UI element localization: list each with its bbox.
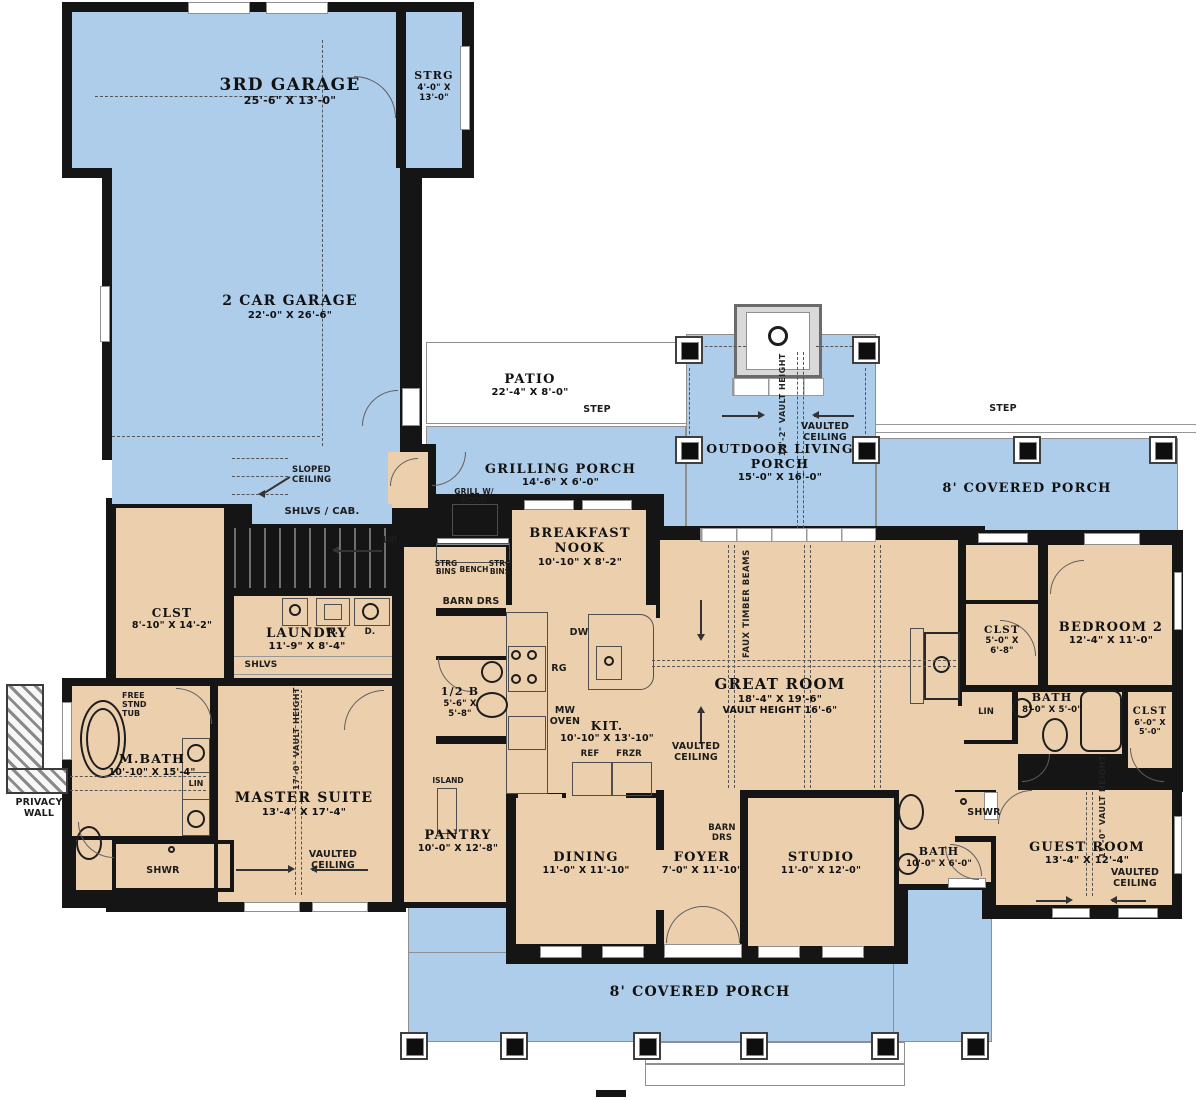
- arrowhead: [758, 411, 769, 419]
- shlvs-label: SHLVS: [238, 660, 284, 670]
- frzr-label: FRZR: [612, 750, 646, 760]
- garage-door: [188, 2, 250, 14]
- label-half-bath: 1/2 B 5'-6" X 5'-8": [438, 686, 482, 719]
- room-name: PATIO: [468, 372, 592, 387]
- room-name: BATH: [906, 846, 972, 859]
- opening: [954, 706, 964, 782]
- step-label: STEP: [978, 404, 1028, 415]
- garage-bay-line: [112, 436, 320, 437]
- label-pantry: PANTRY 10'-0" X 12'-8": [414, 828, 502, 855]
- step-label: STEP: [572, 405, 622, 416]
- up-arrow: [334, 550, 382, 552]
- dryer-door: [362, 603, 379, 620]
- beam-line: [652, 660, 956, 661]
- rg-label: RG: [548, 664, 570, 675]
- room-name: BATH: [1022, 692, 1082, 705]
- vault-arrow: [722, 415, 762, 417]
- room-name: 8' COVERED PORCH: [932, 481, 1122, 496]
- label-clst-guest: CLST 6'-0" X 5'-0": [1126, 706, 1174, 737]
- porch-column: [1149, 436, 1177, 464]
- window: [1052, 908, 1090, 918]
- arrowhead: [808, 411, 819, 419]
- burner: [527, 650, 537, 660]
- arrowhead: [697, 634, 705, 645]
- label-clst-b2: CLST 5'-0" X 6'-8": [974, 624, 1030, 656]
- porch-column: [961, 1032, 989, 1060]
- shower-head: [960, 798, 967, 805]
- label-patio: PATIO 22'-4" X 8'-0": [468, 372, 592, 399]
- ref-label: REF: [576, 750, 604, 760]
- room-name: GREAT ROOM: [698, 676, 862, 694]
- room-dims: 6'-0" X 5'-0": [1126, 718, 1174, 737]
- island-label: ISLAND: [432, 777, 464, 785]
- vault-arrow: [700, 600, 702, 636]
- room-name: STUDIO: [766, 850, 876, 865]
- window: [602, 946, 644, 958]
- label-master: MASTER SUITE 13'-4" X 17'-4": [222, 790, 386, 818]
- vault-height-label: 17'-0" VAULT HEIGHT: [1098, 788, 1107, 858]
- window: [524, 500, 574, 510]
- front-steps: [645, 1042, 905, 1064]
- nook-floor: [966, 545, 1038, 600]
- room-dims: 11'-0" X 11'-10": [528, 865, 644, 876]
- sink: [187, 810, 205, 828]
- sloped-ceiling-label: SLOPED CEILING: [292, 466, 354, 486]
- room-name: GUEST ROOM: [1008, 840, 1166, 855]
- faux-beams-label: FAUX TIMBER BEAMS: [742, 554, 752, 658]
- label-laundry: LAUNDRY 11'-9" X 8'-4": [242, 626, 372, 653]
- privacy-wall-label: PRIVACY WALL: [2, 798, 76, 820]
- burner: [511, 650, 521, 660]
- shower-head: [168, 846, 175, 853]
- room-dims: 18'-4" X 19'-6": [698, 694, 862, 706]
- door-opening: [402, 388, 420, 426]
- fireplace-circle: [933, 656, 950, 673]
- room-name: PANTRY: [414, 828, 502, 843]
- room-dims: 10'-10" X 15'-4": [106, 767, 198, 778]
- eave-line: [876, 424, 1196, 425]
- folding-glass-door: [700, 528, 876, 542]
- dryer-label: D.: [360, 628, 380, 638]
- room-dims: 25'-6" X 13'-0": [180, 95, 400, 108]
- room-name: LAUNDRY: [242, 626, 372, 641]
- eave-line: [876, 432, 1196, 433]
- room-name: MASTER SUITE: [222, 790, 386, 807]
- room-name: BEDROOM 2: [1050, 620, 1172, 635]
- porch-column: [871, 1032, 899, 1060]
- grill: [452, 504, 498, 536]
- room-name: 1/2 B: [438, 686, 482, 699]
- room-dims: 8'-10" X 14'-2": [126, 620, 218, 631]
- room-name: CLST: [126, 606, 218, 620]
- window: [758, 946, 800, 958]
- porch-dash: [865, 368, 866, 434]
- sloped-mark: [232, 476, 288, 477]
- label-studio: STUDIO 11'-0" X 12'-0": [766, 850, 876, 877]
- front-steps: [645, 1064, 905, 1086]
- label-garage2: 2 CAR GARAGE 22'-0" X 26'-6": [195, 293, 385, 321]
- garage-door: [266, 2, 328, 14]
- label-strg: STRG 4'-0" X 13'-0": [406, 70, 462, 103]
- label-kitchen: KIT. 10'-10" X 13'-10": [552, 719, 662, 744]
- vault-height-label: 16'-2" VAULT HEIGHT: [778, 370, 787, 456]
- privacy-dash: [70, 790, 206, 791]
- room-dims: 10'-10" X 13'-10": [552, 733, 662, 744]
- window: [312, 902, 368, 912]
- room-name: BREAKFAST NOOK: [520, 526, 640, 557]
- arrowhead: [1106, 896, 1117, 904]
- porch-column: [500, 1032, 528, 1060]
- label-bedroom2: BEDROOM 2 12'-4" X 11'-0": [1050, 620, 1172, 647]
- mud-floor: [436, 616, 506, 656]
- free-stnd-tub-label: FREE STND TUB: [122, 692, 164, 718]
- lin-label: LIN: [184, 780, 208, 789]
- shwr-label: SHWR: [956, 808, 1012, 819]
- window: [822, 946, 864, 958]
- stairs: [234, 528, 392, 588]
- arrowhead: [254, 490, 265, 498]
- vaulted-ceiling-label: VAULTED CEILING: [1102, 868, 1168, 890]
- label-porch-bottom: 8' COVERED PORCH: [560, 984, 840, 1001]
- vaulted-ceiling-label: VAULTED CEILING: [664, 742, 728, 764]
- room-dims: 11'-9" X 8'-4": [242, 641, 372, 653]
- label-guest: GUEST ROOM 13'-4" X 12'-4": [1008, 840, 1166, 867]
- label-breakfast: BREAKFAST NOOK 10'-10" X 8'-2": [520, 526, 640, 568]
- mw-oven-cabinet: [508, 716, 546, 750]
- label-grilling: GRILLING PORCH 14'-6" X 6'-0": [468, 462, 653, 489]
- window: [62, 702, 72, 760]
- room-dims: 13'-4" X 12'-4": [1008, 855, 1166, 867]
- room-dims: 10'-10" X 8'-2": [520, 557, 640, 569]
- room-name: CLST: [1126, 706, 1174, 718]
- vaulted-ceiling-label: VAULTED CEILING: [300, 850, 366, 872]
- vault-arrow: [1036, 900, 1070, 902]
- label-bath-studio: BATH 10'-0" X 6'-0": [906, 846, 972, 869]
- window: [244, 902, 300, 912]
- room-name: 3RD GARAGE: [180, 75, 400, 95]
- counter: [506, 612, 548, 794]
- arrowhead: [328, 546, 339, 554]
- room-name: CLST: [974, 624, 1030, 636]
- lin-label: LIN: [968, 708, 1004, 717]
- porch-dash: [689, 368, 690, 434]
- sloped-mark: [232, 458, 288, 459]
- freezer: [612, 762, 652, 796]
- barn-drs-label: BARN DRS: [700, 824, 744, 844]
- room-dims: 10'-0" X 6'-0": [906, 859, 972, 869]
- room-name: FOYER: [656, 850, 748, 865]
- window: [978, 533, 1028, 543]
- room-name: STRG: [406, 70, 462, 83]
- washer-label: W.: [322, 628, 342, 638]
- vaulted-ceiling-label: VAULTED CEILING: [794, 422, 856, 444]
- island-faucet: [604, 656, 614, 666]
- window: [1118, 908, 1158, 918]
- room-dims: 11'-0" X 12'-0": [766, 865, 876, 876]
- shlvs-cab-label: SHLVS / CAB.: [256, 506, 388, 518]
- room-note: VAULT HEIGHT 16'-6": [698, 705, 862, 716]
- label-foyer: FOYER 7'-0" X 11'-10": [656, 850, 748, 877]
- porch-column: [675, 436, 703, 464]
- room-name: DINING: [528, 850, 644, 865]
- barn-drs-label: BARN DRS: [440, 597, 502, 608]
- room-dims: 13'-4" X 17'-4": [222, 807, 386, 819]
- burner: [511, 674, 521, 684]
- room-name: M.BATH: [106, 752, 198, 767]
- room-dims: 10'-0" X 12'-8": [414, 843, 502, 854]
- room-name: KIT.: [552, 719, 662, 733]
- porch-column: [633, 1032, 661, 1060]
- strg-bins-label: STRG BINS: [434, 560, 458, 577]
- outdoor-fireplace-circle: [768, 326, 788, 346]
- floor-plan: 3RD GARAGE 25'-6" X 13'-0" STRG 4'-0" X …: [0, 0, 1200, 1100]
- label-porch-right: 8' COVERED PORCH: [932, 481, 1122, 496]
- sink: [481, 661, 503, 683]
- window: [1084, 533, 1140, 545]
- toilet: [898, 794, 924, 830]
- room-dims: 22'-0" X 26'-6": [195, 310, 385, 322]
- shelf-line: [234, 674, 392, 675]
- room-name: GRILLING PORCH: [468, 462, 653, 477]
- privacy-wall: [6, 768, 68, 794]
- label-great: GREAT ROOM 18'-4" X 19'-6" VAULT HEIGHT …: [698, 676, 862, 717]
- vault-height-label: 17'-0" VAULT HEIGHT: [292, 700, 301, 790]
- toilet: [1042, 718, 1068, 752]
- up-label: UP: [378, 536, 402, 547]
- room-name: 2 CAR GARAGE: [195, 293, 385, 310]
- front-door-opening: [664, 944, 742, 958]
- shwr-label: SHWR: [140, 866, 186, 877]
- porch-column: [400, 1032, 428, 1060]
- window: [100, 286, 110, 342]
- bench-label: BENCH: [458, 566, 490, 574]
- window: [1174, 572, 1182, 630]
- refrigerator: [572, 762, 612, 796]
- room-dims: 5'-0" X 6'-8": [974, 636, 1030, 656]
- burner: [527, 674, 537, 684]
- grill-label: GRILL W/ HOOD: [444, 488, 504, 505]
- arrowhead: [1066, 896, 1077, 904]
- room-dims: 8'-0" X 5'-0": [1022, 705, 1082, 715]
- dw-label: DW: [567, 628, 591, 639]
- porch-column: [852, 336, 880, 364]
- arrowhead: [288, 865, 299, 873]
- room-dims: 5'-6" X 5'-8": [438, 699, 482, 719]
- clst-master-floor: [116, 508, 224, 678]
- room-dims: 7'-0" X 11'-10": [656, 865, 748, 876]
- room-dims: 4'-0" X 13'-0": [406, 83, 462, 103]
- vault-arrow: [236, 869, 292, 871]
- porch-column: [1013, 436, 1041, 464]
- room-dims: 15'-0" X 16'-0": [700, 472, 860, 484]
- room-name: 8' COVERED PORCH: [560, 984, 840, 1001]
- label-clst-master: CLST 8'-10" X 14'-2": [126, 606, 218, 631]
- door-opening: [948, 878, 986, 888]
- tub: [1080, 690, 1122, 752]
- vault-arrow: [1112, 900, 1146, 902]
- walk-mark: [596, 1090, 626, 1097]
- beam-line: [652, 666, 956, 667]
- hall2-floor: [958, 744, 1018, 790]
- label-mbath: M.BATH 10'-10" X 15'-4": [106, 752, 198, 778]
- porch-column: [740, 1032, 768, 1060]
- shelf-line: [234, 656, 392, 657]
- window: [582, 500, 632, 510]
- porch-dash: [700, 346, 746, 347]
- room-dims: 12'-4" X 11'-0": [1050, 635, 1172, 647]
- window: [1174, 816, 1182, 874]
- label-bath2: BATH 8'-0" X 5'-0": [1022, 692, 1082, 715]
- laundry-sink-basin: [289, 604, 301, 616]
- vault-arrow: [814, 415, 854, 417]
- window: [540, 946, 582, 958]
- room-dims: 22'-4" X 8'-0": [468, 387, 592, 399]
- washer-door: [324, 604, 342, 620]
- label-dining: DINING 11'-0" X 11'-10": [528, 850, 644, 877]
- label-garage3: 3RD GARAGE 25'-6" X 13'-0": [180, 75, 400, 108]
- porch-column: [675, 336, 703, 364]
- strg-bins-label: STRG BINS: [488, 560, 512, 577]
